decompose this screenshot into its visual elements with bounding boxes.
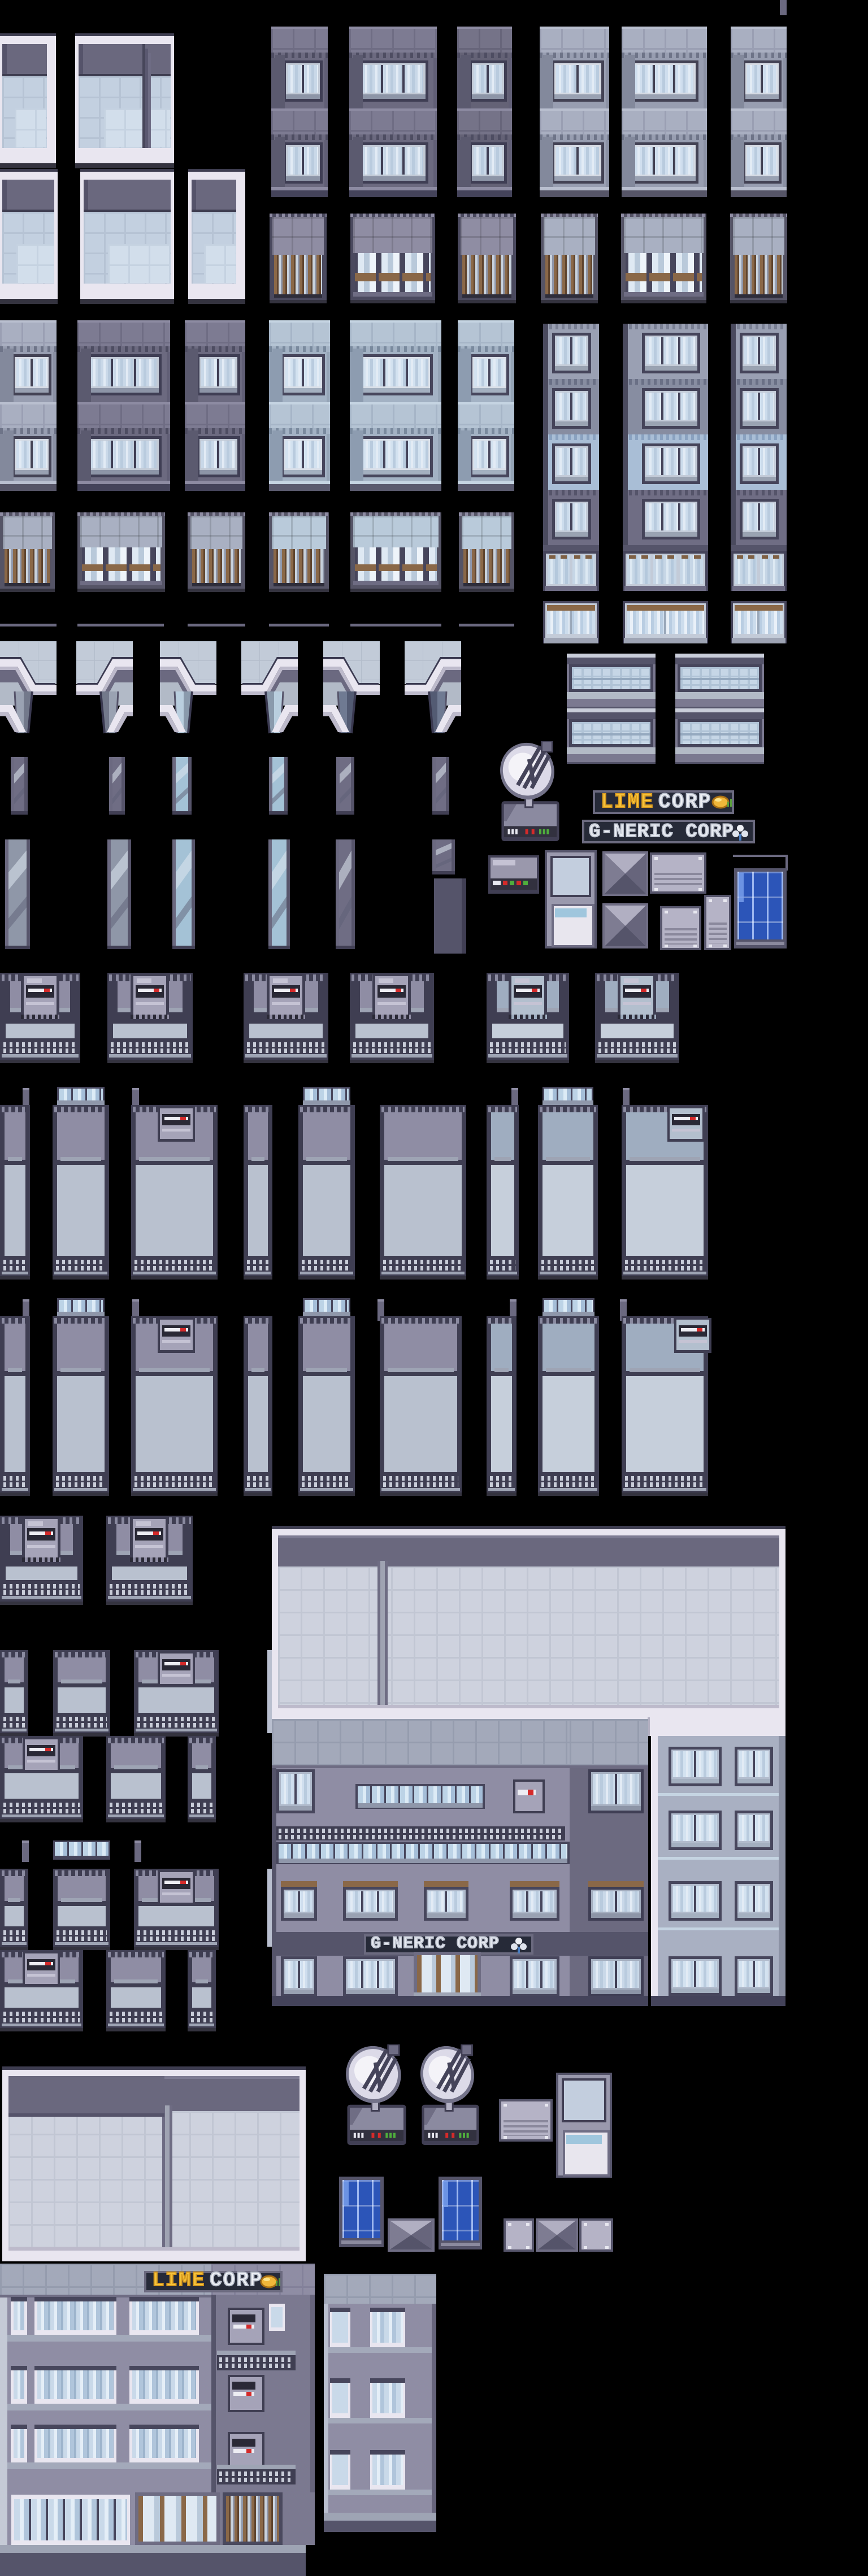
svg-text:G-NERIC CORP: G-NERIC CORP xyxy=(371,1934,500,1953)
svg-text:CORP: CORP xyxy=(658,790,711,813)
svg-text:LIME: LIME xyxy=(601,790,654,813)
svg-text:LIME: LIME xyxy=(152,2271,205,2292)
svg-text:CORP: CORP xyxy=(210,2271,263,2292)
svg-text:G-NERIC CORP: G-NERIC CORP xyxy=(589,821,734,843)
